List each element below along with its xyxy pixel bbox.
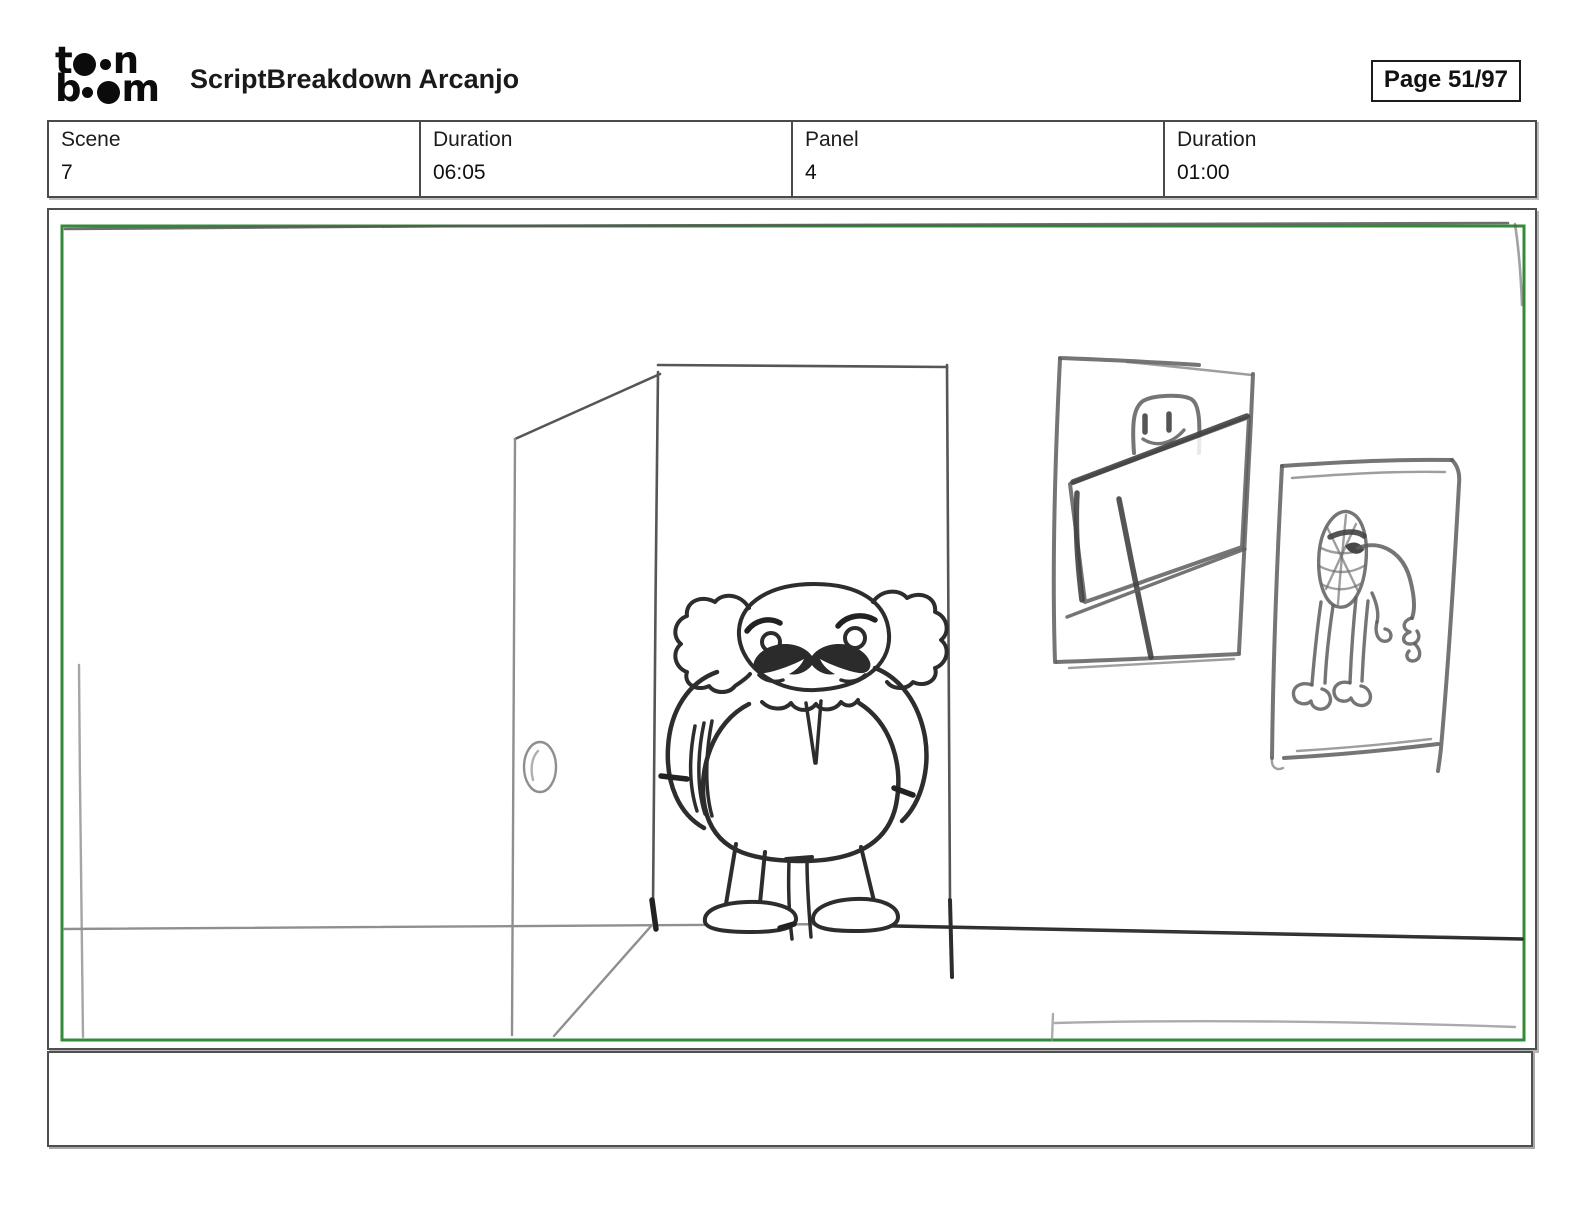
logo-dot-icon — [97, 81, 120, 104]
wall-picture-stick-figure — [1054, 358, 1253, 668]
document-title: ScriptBreakdown Arcanjo — [190, 64, 519, 95]
character-sketch — [661, 584, 947, 939]
wall-picture-spiderman-creature — [1272, 460, 1459, 771]
scene-field: Scene 7 — [49, 122, 421, 196]
logo-letter: b — [55, 75, 80, 103]
storyboard-drawing-panel — [47, 208, 1537, 1050]
panel-field: Panel 4 — [793, 122, 1165, 196]
panel-duration-field: Duration 01:00 — [1165, 122, 1535, 196]
toonboom-logo: t n b m — [55, 50, 158, 106]
scene-duration-label: Duration — [433, 128, 779, 152]
logo-line-2: b m — [55, 78, 158, 106]
panel-duration-label: Duration — [1177, 128, 1523, 152]
logo-letter: m — [122, 75, 159, 103]
panel-value: 4 — [805, 161, 1151, 185]
scene-info-table: Scene 7 Duration 06:05 Panel 4 Duration … — [47, 120, 1537, 198]
page-number-badge: Page 51/97 — [1371, 60, 1521, 102]
logo-dot-icon — [100, 59, 111, 70]
caption-box — [47, 1051, 1533, 1147]
open-door — [512, 374, 660, 1036]
door-knob — [524, 742, 556, 792]
scene-value: 7 — [61, 161, 407, 185]
scene-duration-field: Duration 06:05 — [421, 122, 793, 196]
storyboard-sketch — [49, 210, 1535, 1048]
panel-label: Panel — [805, 128, 1151, 152]
mustache — [754, 644, 871, 675]
scene-duration-value: 06:05 — [433, 161, 779, 185]
storyboard-breakdown-page: t n b m ScriptBreakdown Arcanjo Page 51/… — [0, 0, 1584, 1224]
panel-duration-value: 01:00 — [1177, 161, 1523, 185]
floor-line — [64, 924, 1522, 1040]
scene-label: Scene — [61, 128, 407, 152]
logo-dot-icon — [82, 87, 93, 98]
